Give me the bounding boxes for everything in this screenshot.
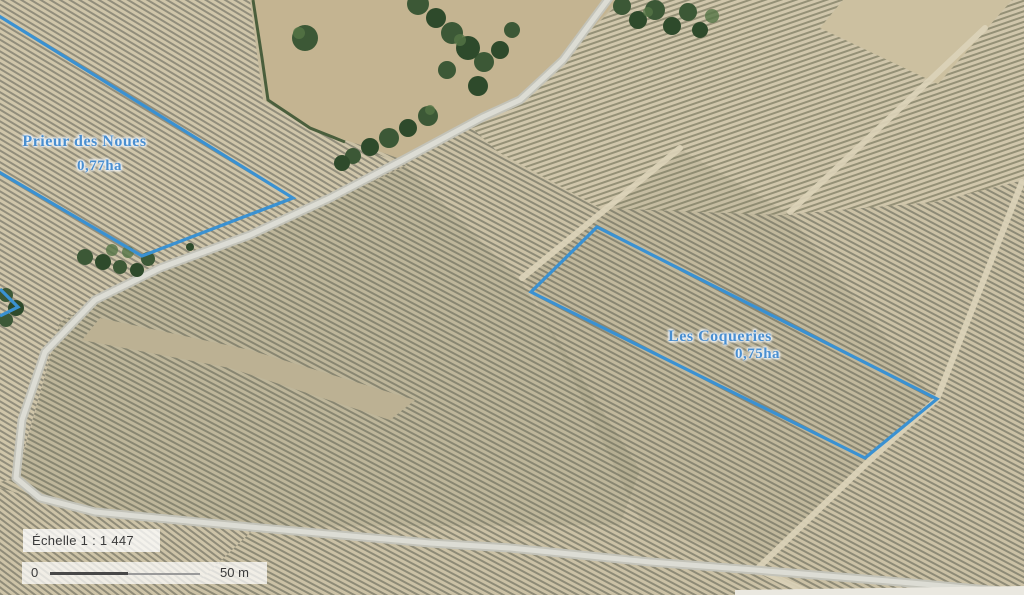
- scale-indicator: Échelle 1 : 1 447: [23, 529, 160, 552]
- scalebar-line-dark-segment: [50, 572, 128, 575]
- parcel-label-les-coqueries-area: 0,75ha: [650, 346, 865, 363]
- scalebar-line-light-segment: [128, 573, 200, 575]
- scalebar: 0 50 m: [22, 562, 267, 584]
- scalebar-end-label: 50 m: [220, 562, 249, 584]
- aerial-imagery: [0, 0, 1024, 595]
- parcel-label-les-coqueries-name: Les Coqueries: [650, 328, 790, 346]
- scalebar-start-label: 0: [31, 562, 38, 584]
- scale-indicator-label: Échelle 1 : 1 447: [32, 533, 134, 548]
- parcel-label-prieur-des-noues-area: 0,77ha: [12, 158, 187, 175]
- parcel-label-prieur-des-noues-name: Prieur des Noues: [12, 133, 157, 151]
- map-canvas[interactable]: Prieur des Noues 0,77ha Les Coqueries 0,…: [0, 0, 1024, 595]
